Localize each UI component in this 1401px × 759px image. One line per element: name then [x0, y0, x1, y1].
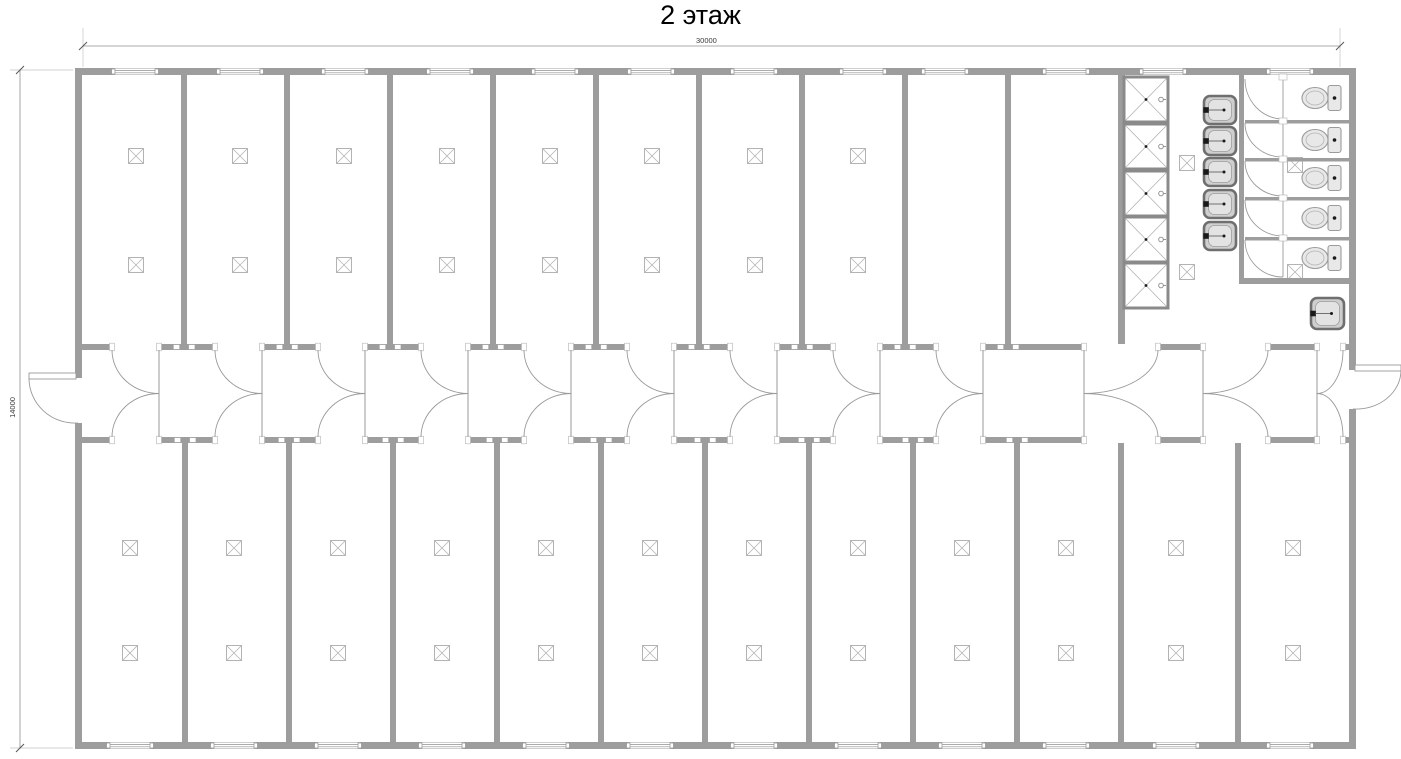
- door-jamb: [1156, 436, 1161, 444]
- wall-jamb: [383, 438, 389, 443]
- corridor-door-opening: [215, 344, 262, 350]
- room-divider-wall: [286, 443, 292, 742]
- corridor-door-opening: [730, 437, 777, 443]
- door-jamb: [1082, 436, 1087, 444]
- wall-jamb: [1007, 438, 1013, 443]
- toilet-icon: [1333, 96, 1337, 100]
- window: [841, 69, 885, 75]
- wall-jamb: [487, 438, 493, 443]
- window: [1310, 743, 1314, 748]
- door-arc: [936, 350, 983, 394]
- corridor-door-opening: [936, 437, 983, 443]
- stall-divider: [1245, 120, 1353, 124]
- door-jamb: [981, 343, 986, 351]
- window: [774, 743, 778, 748]
- window: [1196, 743, 1200, 748]
- door-jamb: [466, 343, 471, 351]
- door-arc: [215, 350, 262, 394]
- corridor-door-opening: [1203, 437, 1268, 443]
- window: [1086, 743, 1090, 748]
- room-divider-wall: [902, 75, 908, 344]
- wall-jamb: [398, 438, 404, 443]
- door-jamb: [878, 436, 883, 444]
- door-jamb: [522, 343, 527, 351]
- room-divider-wall: [1118, 443, 1124, 742]
- window: [1044, 69, 1088, 75]
- window: [1153, 743, 1157, 748]
- wall-jamb: [1013, 345, 1019, 350]
- stall-door-jamb: [1279, 235, 1287, 241]
- door-arc: [833, 350, 880, 394]
- stall-door-arc: [1245, 240, 1283, 277]
- window: [731, 743, 735, 748]
- door-arc: [524, 394, 571, 438]
- wall-jamb: [689, 345, 695, 350]
- corridor-door-opening: [833, 437, 880, 443]
- wall-jamb: [704, 345, 710, 350]
- window: [835, 743, 839, 748]
- window: [1154, 743, 1198, 749]
- shower-drain-icon: [1145, 192, 1148, 195]
- window: [671, 69, 675, 74]
- door-jamb: [1156, 343, 1161, 351]
- window: [566, 743, 570, 748]
- window: [428, 69, 472, 75]
- corridor-door-opening: [627, 437, 674, 443]
- window: [1140, 69, 1144, 74]
- wall-jamb: [606, 438, 612, 443]
- door-jamb: [260, 436, 265, 444]
- window: [1268, 69, 1312, 75]
- wall-jamb: [483, 345, 489, 350]
- corridor-door-opening: [1203, 344, 1268, 350]
- room-divider-wall: [494, 443, 500, 742]
- door-jamb: [831, 436, 836, 444]
- room-divider-wall: [490, 75, 496, 344]
- shower-drain-icon: [1145, 284, 1148, 287]
- window: [878, 743, 882, 748]
- corridor-door-opening: [421, 437, 468, 443]
- window: [670, 743, 674, 748]
- room-divider-wall: [696, 75, 702, 344]
- wall-jamb: [502, 438, 508, 443]
- window: [982, 743, 986, 748]
- sink-faucet-icon: [1203, 138, 1209, 144]
- stall-door-arc: [1245, 123, 1283, 157]
- stall-divider: [1245, 158, 1353, 162]
- door-jamb: [1266, 343, 1271, 351]
- toilet-icon: [1333, 216, 1337, 220]
- door-jamb: [831, 343, 836, 351]
- sink-faucet-icon: [1310, 311, 1316, 317]
- door-arc: [627, 394, 674, 438]
- door-arc: [936, 394, 983, 438]
- door-jamb: [213, 343, 218, 351]
- exit-door-arc: [29, 378, 78, 423]
- window: [940, 743, 984, 749]
- door-jamb: [316, 436, 321, 444]
- window: [218, 69, 262, 75]
- door-arc: [1317, 394, 1343, 438]
- door-arc: [318, 350, 365, 394]
- wall-jamb: [710, 438, 716, 443]
- aisle-wall: [1239, 75, 1244, 284]
- window: [731, 69, 735, 74]
- corridor-door-opening: [112, 437, 159, 443]
- window: [1043, 743, 1047, 748]
- door-jamb: [363, 436, 368, 444]
- door-jamb: [1341, 343, 1346, 351]
- window: [533, 69, 577, 75]
- window: [1086, 69, 1090, 74]
- window: [883, 69, 887, 74]
- sink-faucet-icon: [1203, 233, 1209, 239]
- corridor-door-opening: [1317, 344, 1343, 350]
- door-jamb: [316, 343, 321, 351]
- wall-jamb: [498, 345, 504, 350]
- door-jamb: [419, 343, 424, 351]
- corridor-wall-top: [75, 344, 1356, 350]
- window: [316, 743, 360, 749]
- door-arc: [421, 350, 468, 394]
- exit-door-leaf: [1355, 365, 1401, 371]
- door-jamb: [419, 436, 424, 444]
- wall-jamb: [277, 345, 283, 350]
- corridor-door-opening: [524, 437, 571, 443]
- window: [732, 743, 776, 749]
- window: [732, 69, 776, 75]
- window: [965, 69, 969, 74]
- wall-jamb: [895, 345, 901, 350]
- window: [113, 69, 157, 75]
- door-jamb: [260, 343, 265, 351]
- door-jamb: [1341, 436, 1346, 444]
- door-jamb: [672, 436, 677, 444]
- room-divider-wall: [806, 443, 812, 742]
- door-arc: [627, 350, 674, 394]
- door-arc: [1203, 394, 1268, 438]
- door-jamb: [878, 343, 883, 351]
- window: [1310, 69, 1314, 74]
- window: [1183, 69, 1187, 74]
- floor-plan-drawing: [0, 0, 1401, 759]
- corridor-door-opening: [936, 344, 983, 350]
- window: [108, 743, 152, 749]
- room-divider-wall: [1235, 443, 1241, 742]
- corridor-door-opening: [524, 344, 571, 350]
- corridor-door-opening: [215, 437, 262, 443]
- door-jamb: [466, 436, 471, 444]
- corridor-door-opening: [421, 344, 468, 350]
- wall-jamb: [294, 438, 300, 443]
- room-divider-wall: [598, 443, 604, 742]
- window: [419, 743, 423, 748]
- dimension-height-label: 14000: [8, 397, 17, 418]
- stall-bottom-wall: [1239, 278, 1356, 284]
- sink-icon: [1223, 203, 1226, 206]
- stall-door-arc: [1245, 200, 1283, 236]
- sink-icon: [1223, 171, 1226, 174]
- door-arc: [112, 350, 159, 394]
- stall-door-jamb: [1279, 74, 1287, 80]
- window: [112, 69, 116, 74]
- window: [627, 743, 631, 748]
- room-divider-wall: [799, 75, 805, 344]
- door-jamb: [625, 343, 630, 351]
- door-jamb: [522, 436, 527, 444]
- shower-drain-icon: [1145, 98, 1148, 101]
- window: [1043, 69, 1047, 74]
- corridor-door-opening: [1084, 344, 1158, 350]
- door-jamb: [213, 436, 218, 444]
- wall-jamb: [380, 345, 386, 350]
- window: [575, 69, 579, 74]
- stall-divider: [1245, 237, 1353, 241]
- wall-jamb: [174, 345, 180, 350]
- wall-jamb: [792, 345, 798, 350]
- dimension-width-label: 30000: [696, 36, 717, 45]
- wall-jamb: [910, 345, 916, 350]
- room-divider-wall: [284, 75, 290, 344]
- door-jamb: [1266, 436, 1271, 444]
- sink-faucet-icon: [1203, 201, 1209, 207]
- floor-plan-canvas: 2 этаж 30000 14000: [0, 0, 1401, 759]
- door-jamb: [1201, 343, 1206, 351]
- toilet-icon: [1333, 176, 1337, 180]
- toilet-icon: [1333, 138, 1337, 142]
- door-arc: [112, 394, 159, 438]
- window: [1268, 743, 1312, 749]
- exit-door-leaf: [29, 373, 76, 379]
- door-jamb: [1315, 436, 1320, 444]
- wall-jamb: [695, 438, 701, 443]
- window: [217, 69, 221, 74]
- door-jamb: [363, 343, 368, 351]
- window: [532, 69, 536, 74]
- toilet-icon: [1333, 256, 1337, 260]
- window: [260, 69, 264, 74]
- door-arc: [833, 394, 880, 438]
- door-arc: [1317, 350, 1343, 394]
- wall-jamb: [189, 345, 195, 350]
- wall-jamb: [279, 438, 285, 443]
- door-jamb: [981, 436, 986, 444]
- sink-faucet-icon: [1203, 169, 1209, 175]
- window: [939, 743, 943, 748]
- corridor-door-opening: [833, 344, 880, 350]
- window: [628, 743, 672, 749]
- window: [523, 743, 527, 748]
- corridor-door-opening: [112, 344, 159, 350]
- door-jamb: [110, 436, 115, 444]
- exit-door-opening: [1349, 370, 1356, 409]
- door-jamb: [110, 343, 115, 351]
- exit-door-arc: [1353, 370, 1401, 409]
- window: [155, 69, 159, 74]
- corridor-door-opening: [1084, 437, 1158, 443]
- door-jamb: [157, 436, 162, 444]
- corridor-door-opening: [627, 344, 674, 350]
- sink-icon: [1223, 140, 1226, 143]
- window: [322, 69, 326, 74]
- wall-jamb: [586, 345, 592, 350]
- stall-door-arc: [1245, 161, 1283, 196]
- window: [836, 743, 880, 749]
- room-divider-wall: [181, 75, 187, 344]
- window: [150, 743, 154, 748]
- window: [922, 69, 926, 74]
- stall-door-jamb: [1279, 156, 1287, 162]
- window: [1267, 69, 1271, 74]
- stall-door-jamb: [1279, 118, 1287, 124]
- door-arc: [524, 350, 571, 394]
- room-divider-wall: [182, 443, 188, 742]
- corridor-door-opening: [318, 344, 365, 350]
- wall-jamb: [190, 438, 196, 443]
- window: [420, 743, 464, 749]
- shower-drain-icon: [1145, 145, 1148, 148]
- door-jamb: [569, 343, 574, 351]
- sink-icon: [1223, 109, 1226, 112]
- room-divider-wall: [910, 443, 916, 742]
- stall-divider: [1245, 197, 1353, 201]
- stall-door-jamb: [1279, 195, 1287, 201]
- door-arc: [318, 394, 365, 438]
- door-arc: [1203, 350, 1268, 394]
- window: [1267, 743, 1271, 748]
- window: [358, 743, 362, 748]
- corridor-door-opening: [1317, 437, 1343, 443]
- door-arc: [730, 350, 777, 394]
- door-jamb: [934, 343, 939, 351]
- window: [107, 743, 111, 748]
- wall-jamb: [1022, 438, 1028, 443]
- exit-door-opening: [75, 378, 82, 423]
- sink-faucet-icon: [1203, 107, 1209, 113]
- door-jamb: [775, 436, 780, 444]
- window: [211, 743, 215, 748]
- door-jamb: [728, 343, 733, 351]
- room-divider-wall: [1005, 75, 1011, 344]
- door-arc: [421, 394, 468, 438]
- door-arc: [1084, 394, 1158, 438]
- wall-jamb: [799, 438, 805, 443]
- window: [628, 69, 632, 74]
- page-title: 2 этаж: [660, 0, 741, 31]
- room-divider-wall: [1014, 443, 1020, 742]
- door-jamb: [569, 436, 574, 444]
- door-arc: [1084, 350, 1158, 394]
- window: [254, 743, 258, 748]
- room-divider-wall: [702, 443, 708, 742]
- wall-jamb: [292, 345, 298, 350]
- window: [427, 69, 431, 74]
- wall-jamb: [998, 345, 1004, 350]
- door-jamb: [728, 436, 733, 444]
- wall-jamb: [918, 438, 924, 443]
- window: [212, 743, 256, 749]
- door-jamb: [625, 436, 630, 444]
- window: [462, 743, 466, 748]
- shower-drain-icon: [1145, 238, 1148, 241]
- window: [323, 69, 367, 75]
- wall-jamb: [903, 438, 909, 443]
- wall-jamb: [591, 438, 597, 443]
- corridor-door-opening: [318, 437, 365, 443]
- window: [524, 743, 568, 749]
- door-jamb: [1315, 343, 1320, 351]
- door-jamb: [934, 436, 939, 444]
- window: [840, 69, 844, 74]
- room-divider-wall: [387, 75, 393, 344]
- stall-door-arc: [1245, 79, 1283, 119]
- window: [1141, 69, 1185, 75]
- window: [774, 69, 778, 74]
- sink-icon: [1330, 312, 1333, 315]
- wall-jamb: [601, 345, 607, 350]
- window: [1044, 743, 1088, 749]
- window: [365, 69, 369, 74]
- door-arc: [730, 394, 777, 438]
- sink-icon: [1223, 235, 1226, 238]
- wall-jamb: [814, 438, 820, 443]
- wall-jamb: [175, 438, 181, 443]
- window: [315, 743, 319, 748]
- room-divider-wall: [593, 75, 599, 344]
- wall-jamb: [395, 345, 401, 350]
- door-jamb: [1082, 343, 1087, 351]
- window: [629, 69, 673, 75]
- wall-jamb: [807, 345, 813, 350]
- door-jamb: [157, 343, 162, 351]
- door-jamb: [775, 343, 780, 351]
- door-arc: [215, 394, 262, 438]
- door-jamb: [1201, 436, 1206, 444]
- corridor-door-opening: [730, 344, 777, 350]
- door-jamb: [672, 343, 677, 351]
- window: [470, 69, 474, 74]
- room-divider-wall: [390, 443, 396, 742]
- window: [923, 69, 967, 75]
